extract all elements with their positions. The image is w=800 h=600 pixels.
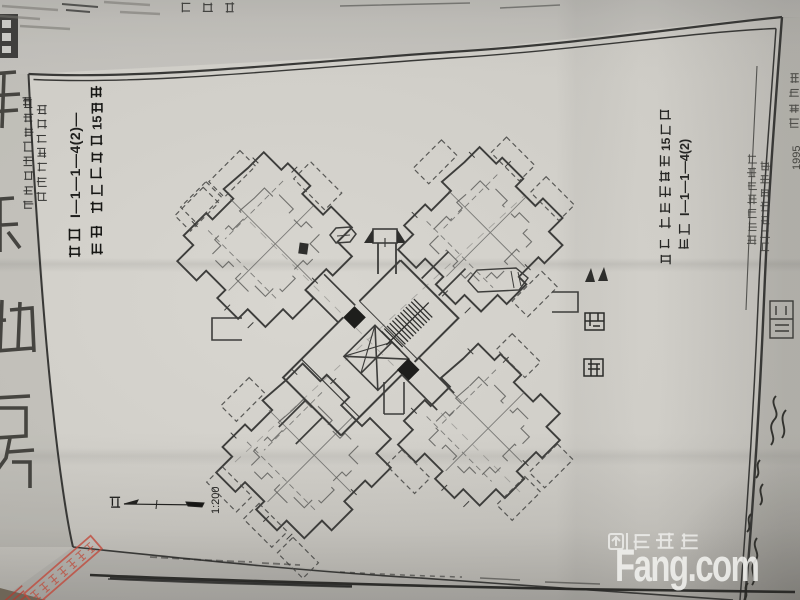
svg-text:I—1—1—4(2)—: I—1—1—4(2)— — [67, 112, 83, 218]
svg-text:15: 15 — [659, 137, 673, 151]
svg-text:I—1—1—4(2): I—1—1—4(2) — [678, 139, 692, 216]
svg-text:15: 15 — [90, 116, 105, 130]
svg-text:1995: 1995 — [791, 146, 800, 170]
svg-text:1:200: 1:200 — [210, 486, 222, 514]
svg-text:Fang.com: Fang.com — [615, 541, 758, 591]
